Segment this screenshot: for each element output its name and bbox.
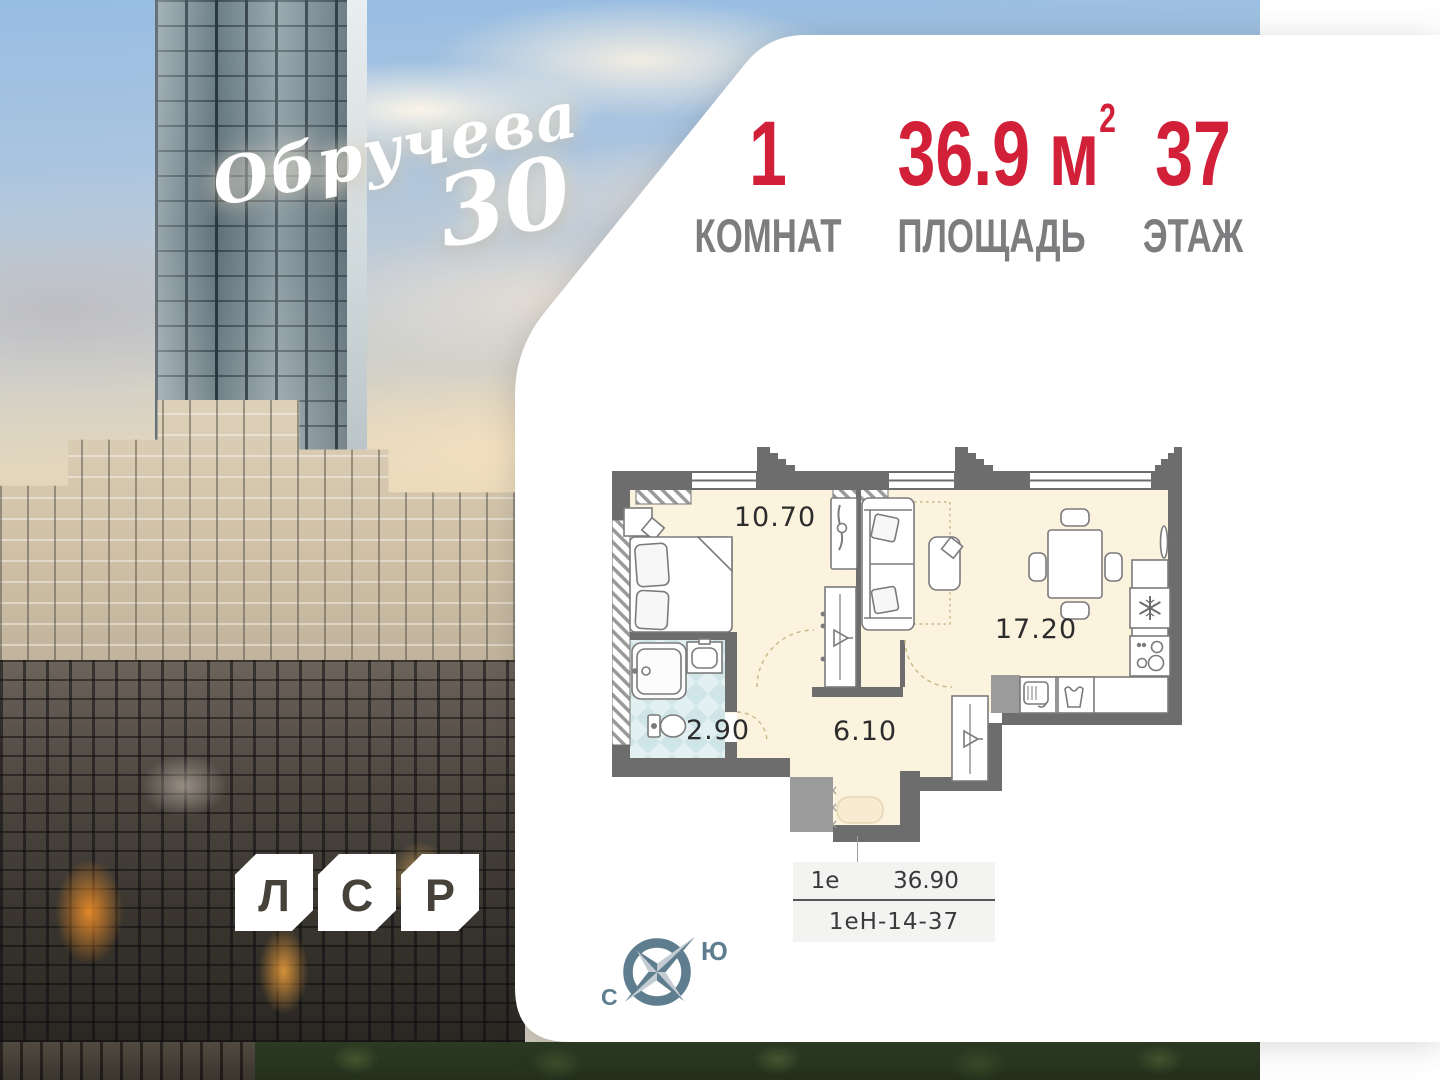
vestibule-wall [790,777,833,832]
unit-code: 1еН-14-37 [793,901,995,942]
developer-letter: Р [425,870,455,922]
tv-console-icon [831,498,857,569]
chair-icon [1061,509,1089,526]
unit-type: 1е [793,862,857,899]
floor-plan: 10.70 17.20 2.90 6.10 [612,442,1182,842]
flyer: Обручева 30 Л С Р 1 КОМНАТ 36.9 м2 ПЛОЩА… [0,0,1440,1080]
exterior-stairs-icon [757,447,795,490]
stove-icon [1130,636,1170,676]
table-row: 1е 36.90 [793,862,995,901]
developer-cube-icon: С [318,854,396,931]
floor-value: 37 [1119,112,1267,197]
entry-mat-icon [837,797,883,823]
pillow-icon [635,543,670,587]
kitchen-pillar [991,675,1020,713]
corner-block [1152,447,1182,490]
floor-label: ЭТАЖ [1119,212,1267,259]
stat-rooms: 1 КОМНАТ [668,112,868,259]
rooms-label: КОМНАТ [694,212,842,259]
wall-tv-icon [1161,526,1168,558]
developer-cube-icon: Р [401,854,479,931]
developer-logo: Л С Р [235,854,479,931]
chair-icon [1029,553,1046,581]
unit-area: 36.90 [857,862,995,899]
compass-icon: Ю С [585,915,755,1045]
hallway-area-label: 6.10 [833,716,897,747]
area-value: 36.9 м2 [898,112,1083,197]
stat-area: 36.9 м2 ПЛОЩАДЬ [865,112,1115,259]
chair-icon [1105,553,1122,581]
pillow-icon [635,590,669,630]
developer-cube-icon: Л [235,854,313,931]
pillow-icon [871,514,899,542]
developer-letter: С [341,870,374,922]
living-area-label: 17.20 [995,614,1077,645]
developer-letter: Л [258,870,290,922]
rooms-value: 1 [694,112,842,197]
stat-floor: 37 ЭТАЖ [1093,112,1293,259]
pillow-icon [871,586,899,614]
exterior-stairs-icon [955,447,993,490]
dining-table-icon [1048,530,1102,598]
compass-south-label: Ю [701,936,728,966]
compass-star [604,915,722,1031]
compass-north-label: С [601,984,618,1010]
bathroom-area-label: 2.90 [686,715,750,746]
bedroom-area-label: 10.70 [734,502,816,533]
area-label: ПЛОЩАДЬ [898,212,1083,259]
unit-info-table: 1е 36.90 1еН-14-37 [793,862,995,942]
